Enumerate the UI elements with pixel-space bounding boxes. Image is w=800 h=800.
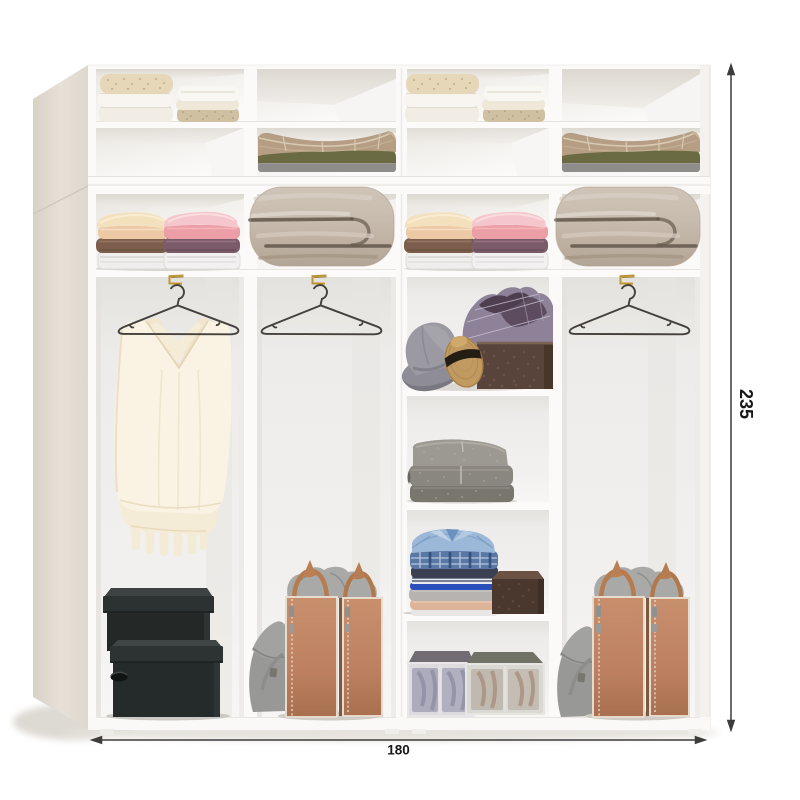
- svg-text:235: 235: [736, 389, 756, 419]
- svg-text:180: 180: [387, 743, 410, 758]
